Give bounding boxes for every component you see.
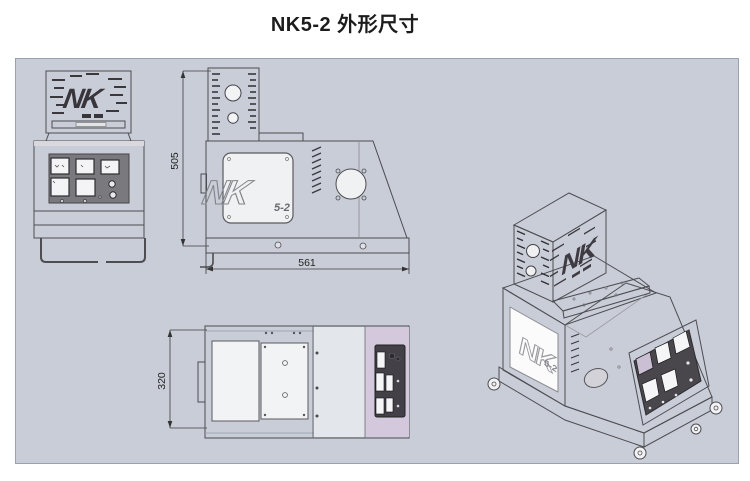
top-panel-left xyxy=(212,341,259,421)
top-handle xyxy=(198,362,205,402)
dimension-height: 505 xyxy=(169,71,211,246)
iso-control-panel xyxy=(629,320,709,425)
front-right-foot xyxy=(106,238,145,262)
iso-vent-dashes xyxy=(571,334,579,372)
top-meter-cluster xyxy=(375,345,405,417)
side-foot xyxy=(200,253,213,267)
front-left-foot xyxy=(41,238,98,262)
page-title: NK5-2 外形尺寸 xyxy=(0,8,690,37)
front-neck xyxy=(46,133,131,141)
top-mid-section xyxy=(314,327,365,437)
logo-subtext-mark xyxy=(82,114,91,118)
dim-width-label: 561 xyxy=(298,257,316,269)
diagonal-vents xyxy=(312,147,321,193)
top-panel-right xyxy=(261,343,308,419)
dimension-depth: 320 xyxy=(156,330,207,428)
vent-slots xyxy=(212,74,256,134)
front-body xyxy=(34,141,144,211)
dimension-width: 561 xyxy=(206,253,409,274)
side-logo-model: 5-2 xyxy=(274,202,290,214)
isometric-view: NK 5-2 NK xyxy=(474,171,736,463)
panel-knob xyxy=(109,181,115,187)
top-tab xyxy=(259,133,303,141)
page: NK5-2 外形尺寸 NK xyxy=(0,0,750,481)
drawing-canvas: NK xyxy=(15,58,739,464)
side-port-hole xyxy=(336,169,366,199)
front-base-band xyxy=(34,211,144,225)
shaft-hole xyxy=(228,113,238,123)
front-top-box: NK xyxy=(46,71,131,133)
side-body: NK 5-2 xyxy=(199,141,407,238)
dim-height-label: 505 xyxy=(169,152,181,170)
panel-knob xyxy=(110,192,116,198)
top-view: 320 xyxy=(151,299,441,461)
side-top-box xyxy=(208,68,259,141)
iso-top-box: NK xyxy=(514,193,606,302)
front-logo-text: NK xyxy=(61,82,108,114)
iso-box-logo-text: NK xyxy=(561,229,599,281)
side-view: 505 NK 5-2 xyxy=(171,61,441,286)
dim-depth-label: 320 xyxy=(156,372,168,390)
top-body xyxy=(198,326,409,438)
shaft-hole xyxy=(225,85,241,101)
front-base-dark-band xyxy=(34,225,144,238)
front-view: NK xyxy=(26,64,176,276)
iso-side-hole xyxy=(582,365,611,391)
